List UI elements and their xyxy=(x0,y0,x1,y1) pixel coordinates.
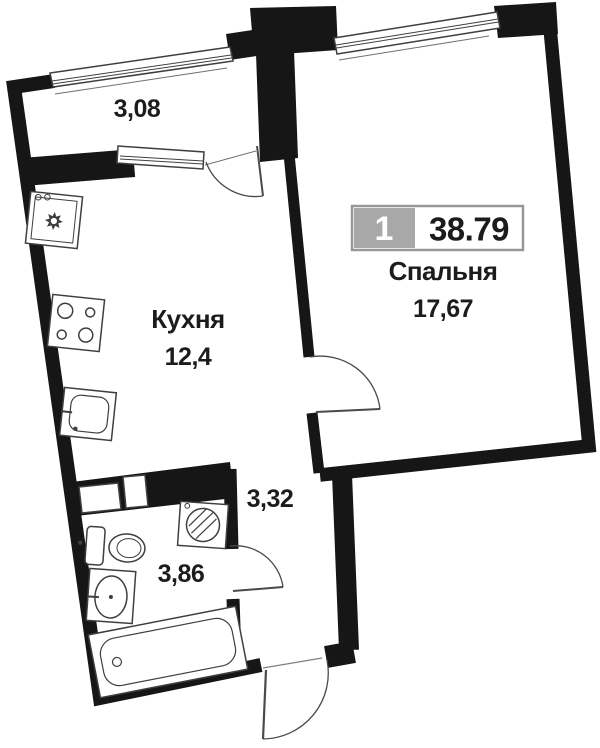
door-arc-icon xyxy=(206,162,263,197)
door-arc-icon xyxy=(310,356,380,409)
balcony-area-label: 3,08 xyxy=(114,95,161,123)
bathroom-vent-box-1 xyxy=(79,483,121,513)
door-arc-icon xyxy=(230,546,283,587)
toilet-icon xyxy=(77,526,147,569)
door-leaf xyxy=(316,409,380,412)
balcony-block-window xyxy=(117,146,256,169)
stove-icon xyxy=(47,294,104,351)
bedroom-door-stub-wall xyxy=(312,413,319,473)
vent-shaft-icon xyxy=(25,191,82,248)
kitchen-area-label: 12,4 xyxy=(165,343,212,371)
kitchen-bedroom-wall xyxy=(289,154,309,357)
balcony-door xyxy=(206,146,263,197)
door-leaf xyxy=(263,670,266,739)
badge-flat-number: 1 xyxy=(375,210,394,248)
washing-machine-icon xyxy=(178,501,229,548)
kitchen-name-label: Кухня xyxy=(151,304,224,334)
entrance-wall-foot xyxy=(326,652,354,657)
hallway-area-label: 3,32 xyxy=(247,485,294,513)
hallway-bedroom-wall xyxy=(342,474,349,650)
badge-total-area: 38.79 xyxy=(429,211,509,248)
bedroom-name-label: Спальня xyxy=(389,256,498,286)
bathroom-area-label: 3,86 xyxy=(158,560,205,588)
balcony-top-window xyxy=(50,47,233,94)
top-right-corner-block xyxy=(494,2,558,38)
balcony-kitchen-wall xyxy=(23,163,134,172)
floor-plan-page: 1 38.79 3,08 Кухня 12,4 Спальня 17,67 3,… xyxy=(0,0,600,748)
bathroom-vent-box-2 xyxy=(123,475,148,508)
bedroom-window xyxy=(334,12,500,60)
entrance-door xyxy=(263,658,328,739)
outer-wall-right-and-bedroom-bottom xyxy=(320,28,589,475)
unit-badge: 1 38.79 xyxy=(352,206,523,250)
bedroom-area-label: 17,67 xyxy=(413,295,473,323)
bathroom-door xyxy=(230,546,283,591)
door-leaf xyxy=(233,587,283,591)
t-block-stem xyxy=(256,50,298,162)
t-block-top xyxy=(250,6,338,56)
bedroom-door xyxy=(310,356,380,412)
kitchen-sink-icon xyxy=(59,387,117,440)
door-arc-icon xyxy=(263,660,328,739)
floor-plan: 1 38.79 3,08 Кухня 12,4 Спальня 17,67 3,… xyxy=(0,0,600,748)
washbasin-icon xyxy=(85,568,136,623)
threshold-line xyxy=(263,658,322,668)
